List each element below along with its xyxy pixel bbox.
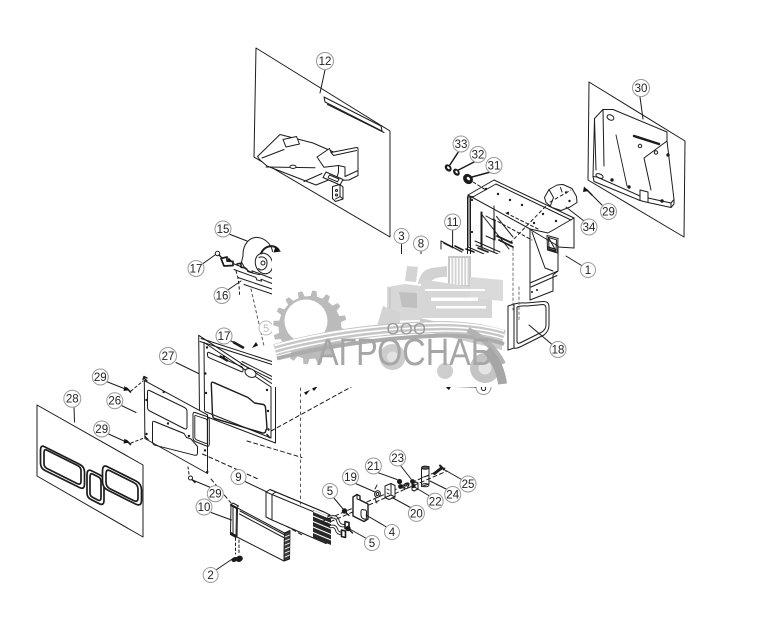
svg-text:33: 33: [455, 139, 468, 151]
svg-text:18: 18: [552, 345, 565, 357]
svg-text:11: 11: [447, 217, 459, 229]
svg-text:34: 34: [583, 222, 596, 234]
svg-text:8: 8: [418, 239, 424, 251]
svg-text:12: 12: [319, 56, 332, 68]
svg-text:АГРОСНАБ: АГРОСНАБ: [317, 332, 492, 374]
svg-text:19: 19: [344, 472, 357, 484]
svg-text:5: 5: [327, 486, 333, 498]
svg-text:15: 15: [217, 224, 230, 236]
svg-text:16: 16: [216, 291, 229, 303]
svg-text:29: 29: [95, 424, 108, 436]
svg-text:30: 30: [635, 83, 648, 95]
svg-text:26: 26: [108, 396, 121, 408]
svg-text:5: 5: [369, 538, 375, 550]
svg-text:29: 29: [209, 489, 222, 501]
svg-text:23: 23: [391, 453, 404, 465]
svg-text:31: 31: [488, 161, 501, 173]
svg-text:24: 24: [446, 490, 459, 502]
svg-text:21: 21: [367, 461, 380, 473]
svg-text:5: 5: [263, 323, 269, 335]
svg-text:17: 17: [190, 264, 203, 276]
svg-text:2: 2: [207, 570, 213, 582]
svg-text:10: 10: [198, 502, 211, 514]
svg-text:28: 28: [66, 394, 79, 406]
svg-text:27: 27: [162, 351, 175, 363]
svg-text:9: 9: [235, 472, 241, 484]
svg-text:20: 20: [410, 508, 423, 520]
svg-text:1: 1: [585, 265, 591, 277]
svg-text:3: 3: [398, 231, 404, 243]
svg-text:29: 29: [602, 207, 615, 219]
svg-text:17: 17: [218, 331, 231, 343]
svg-text:25: 25: [462, 479, 475, 491]
svg-text:4: 4: [389, 527, 396, 539]
svg-text:22: 22: [429, 496, 442, 508]
svg-text:32: 32: [472, 150, 485, 162]
svg-text:29: 29: [94, 372, 107, 384]
